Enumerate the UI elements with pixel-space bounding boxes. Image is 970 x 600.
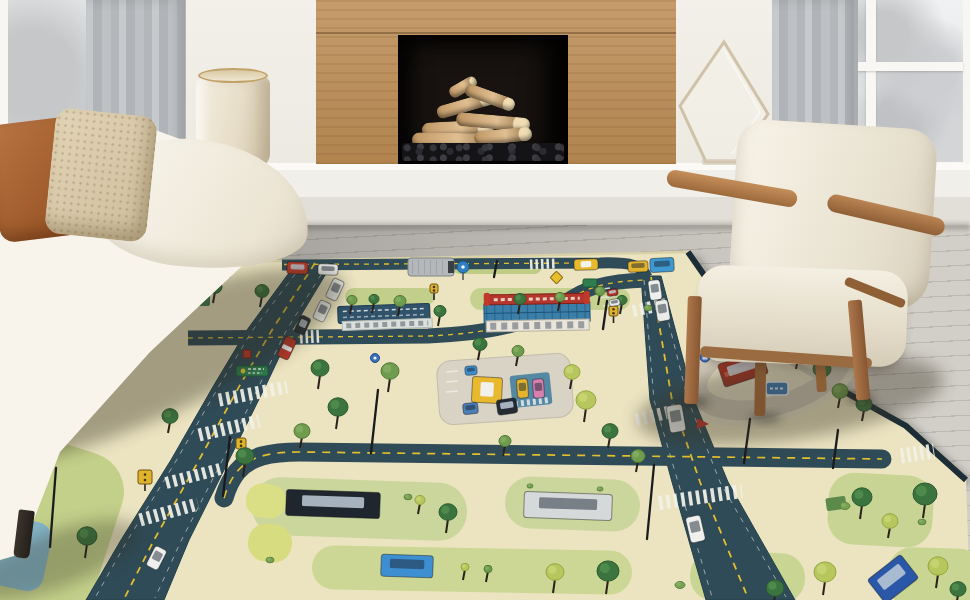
roundabout-sign-dot	[373, 356, 376, 359]
toy-car	[609, 298, 621, 306]
toy-car	[496, 398, 518, 416]
exit-sign	[583, 279, 597, 287]
sign-post	[484, 293, 490, 306]
toy-car	[574, 259, 598, 271]
toy-car	[654, 299, 670, 322]
toy-car	[650, 257, 675, 272]
truck-trailer	[408, 258, 454, 276]
sign-post	[584, 291, 590, 304]
toy-car	[648, 279, 663, 300]
play-rug	[0, 0, 970, 600]
chair-leg-shadow	[681, 397, 709, 407]
chair-leg-shadow	[749, 412, 781, 424]
toy-car	[471, 376, 502, 404]
store-doors	[490, 325, 586, 327]
tree-icon	[597, 487, 603, 491]
toy-car	[381, 554, 434, 578]
parking-sign-glyph	[703, 355, 708, 360]
toy-car	[465, 365, 478, 375]
toy-car	[205, 263, 232, 277]
tree-icon	[266, 557, 274, 563]
toy-car	[532, 379, 544, 399]
trailer-cab	[448, 261, 454, 273]
grass-park	[826, 471, 935, 548]
chair-leg-shadow	[846, 393, 874, 403]
building-store	[484, 291, 591, 332]
toy-car	[524, 491, 613, 520]
tree-icon	[675, 582, 685, 589]
toy-car	[462, 402, 478, 415]
street-lamp	[762, 291, 766, 317]
screenshot-root	[0, 0, 970, 600]
tree-icon	[918, 519, 926, 525]
tree-icon	[404, 494, 412, 500]
tree-icon	[527, 484, 533, 488]
toy-car	[286, 489, 381, 518]
tree-icon	[644, 305, 652, 311]
grass-patch	[345, 288, 435, 305]
toy-car	[607, 288, 619, 296]
parasol-dot	[461, 265, 465, 269]
toy-car	[628, 261, 648, 273]
grass-island	[312, 545, 633, 595]
tree-icon	[840, 503, 850, 510]
toy-car	[516, 379, 528, 399]
